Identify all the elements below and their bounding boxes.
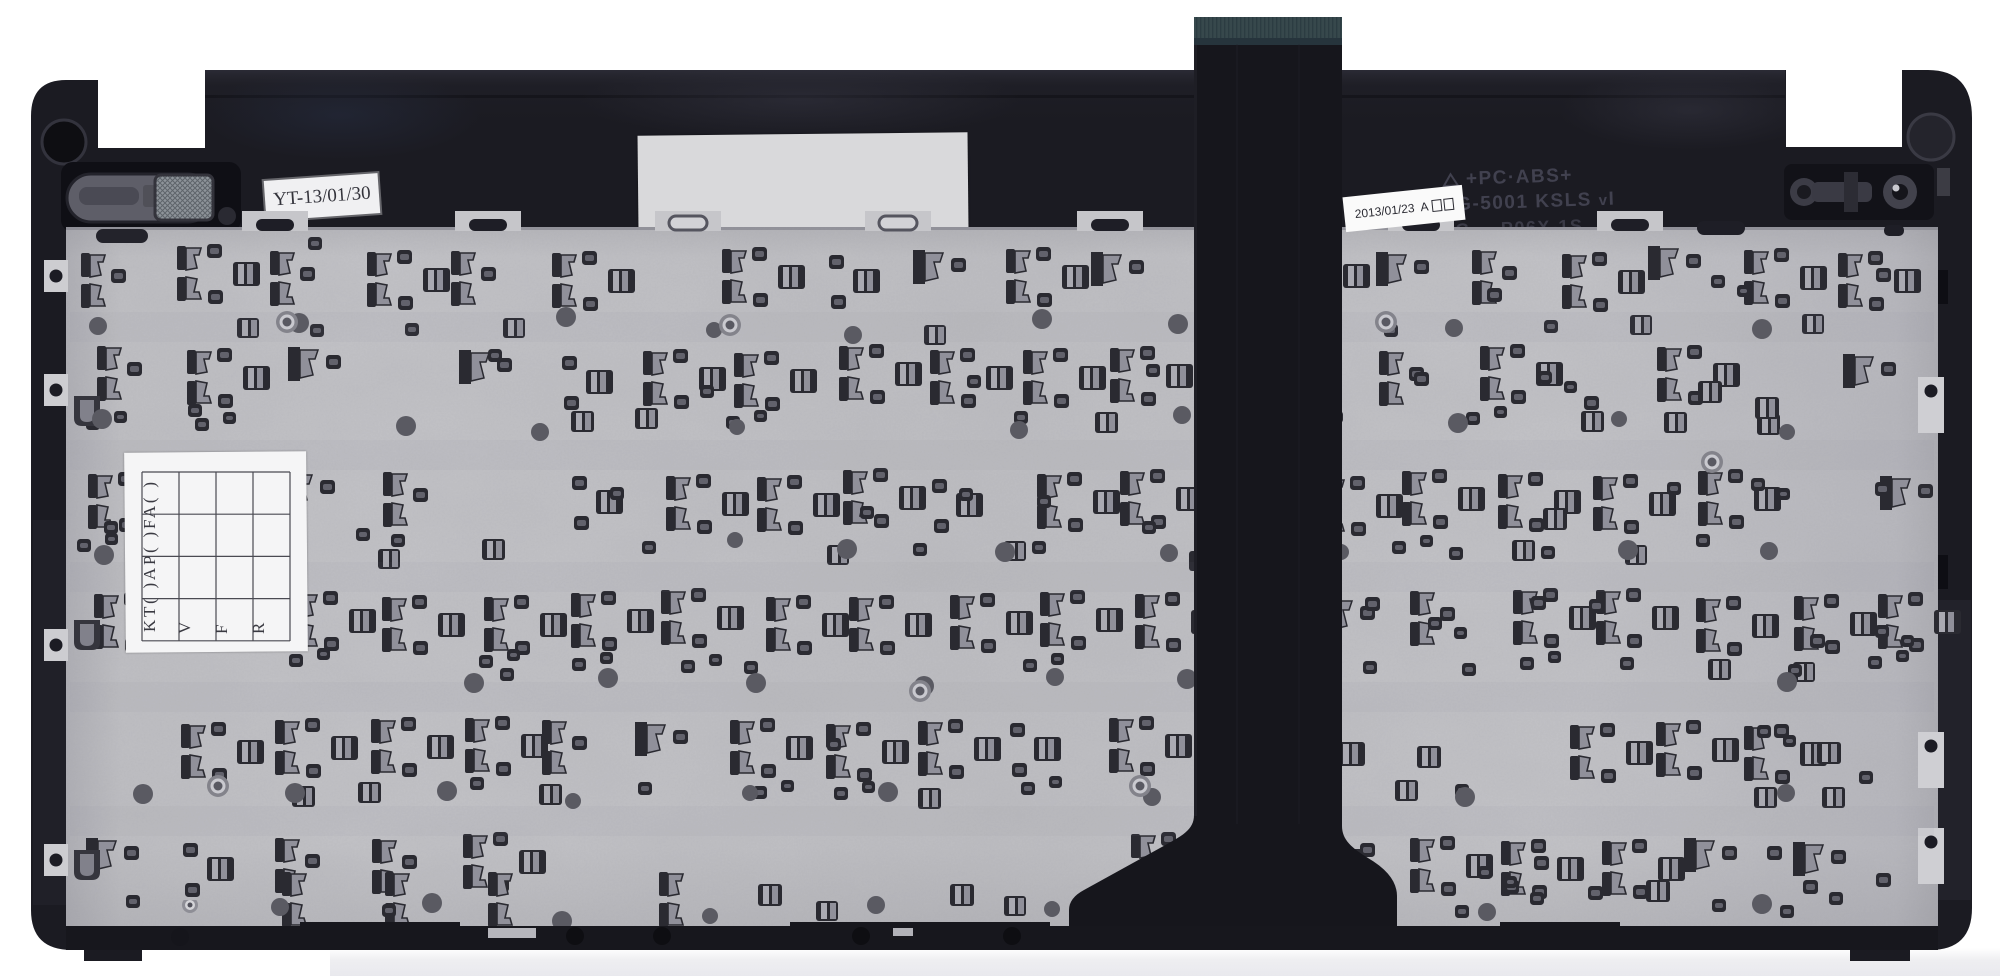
svg-text:R: R: [249, 622, 268, 634]
svg-text:F: F: [212, 625, 231, 634]
svg-text:KT( )AP( )FA( ): KT( )AP( )FA( ): [140, 482, 159, 632]
svg-text:V: V: [175, 621, 194, 634]
